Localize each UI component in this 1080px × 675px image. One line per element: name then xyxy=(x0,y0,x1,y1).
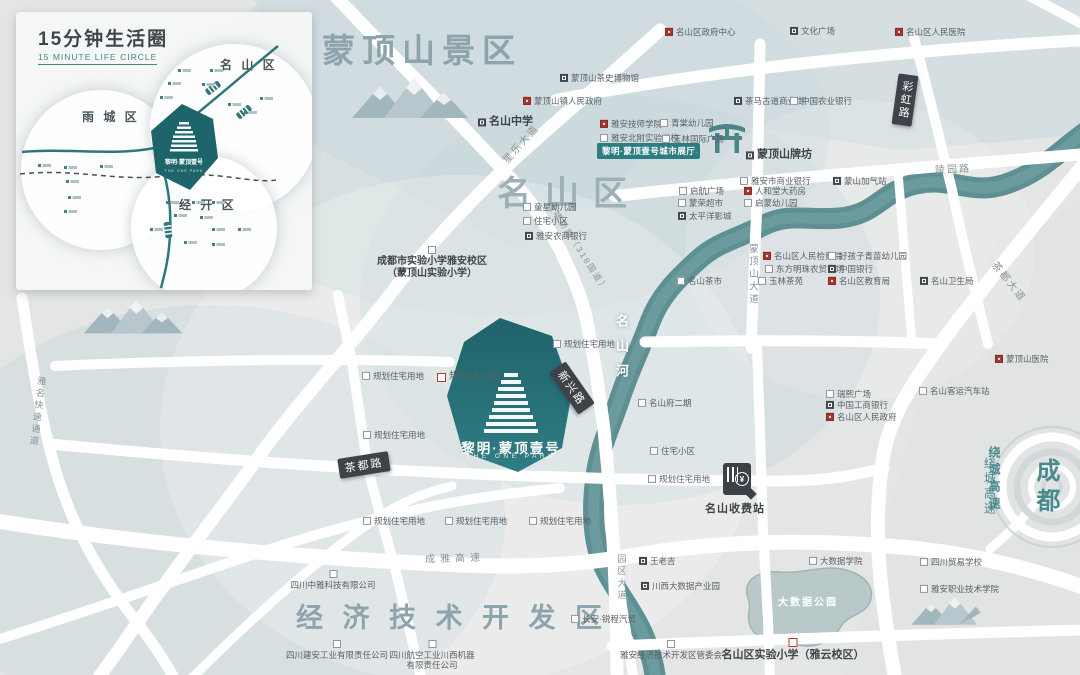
area-title-chengdu: 成都 xyxy=(1028,458,1063,518)
map-poi: 名山区实验小学（雅云校区） xyxy=(722,638,865,662)
map-poi: 名山区人民政府 xyxy=(826,412,897,422)
life-circle-inset: 雨 城 区名 山 区经 开 区 xyxy=(16,12,312,290)
map-poi: 蒙荣超市 xyxy=(678,198,723,208)
poi-marker-icon xyxy=(920,558,928,566)
arrow-icon: → xyxy=(689,145,700,157)
map-poi: 规划住宅用地 xyxy=(363,516,425,526)
poi-marker-icon xyxy=(828,252,836,260)
yuan-circle-icon: ¥ xyxy=(735,472,749,486)
poi-marker-icon xyxy=(529,517,537,525)
inset-micro-poi xyxy=(212,243,225,246)
river-label: 名山河 xyxy=(612,314,631,389)
poi-label: 名山区实验小学（雅云校区） xyxy=(722,649,865,662)
map-poi: 蒙顶山茶史博物馆 xyxy=(560,73,639,83)
poi-marker-icon xyxy=(523,217,531,225)
poi-marker-icon xyxy=(826,413,834,421)
poi-label: 规划住宅用地 xyxy=(564,339,615,349)
poi-label: 蒙荣超市 xyxy=(689,198,723,208)
inset-micro-poi xyxy=(238,228,251,231)
map-poi: 雅安技师学院 xyxy=(600,119,662,129)
poi-marker-icon xyxy=(789,638,798,647)
poi-marker-icon xyxy=(833,177,841,185)
map-poi: 规划住宅用地 xyxy=(529,516,591,526)
poi-marker-icon xyxy=(650,447,658,455)
poi-label: 蒙顶山茶史博物馆 xyxy=(571,73,639,83)
poi-marker-icon xyxy=(525,232,533,240)
map-poi: 启航广场 xyxy=(679,186,724,196)
poi-marker-icon xyxy=(600,134,608,142)
poi-marker-icon xyxy=(828,265,836,273)
inset-micro-poi xyxy=(100,165,113,168)
inset-micro-poi xyxy=(192,201,205,204)
poi-label: 启蒙幼儿园 xyxy=(755,198,798,208)
inset-micro-poi xyxy=(64,166,77,169)
map-poi: 名山卫生局 xyxy=(920,276,974,286)
map-poi: 中国银行 xyxy=(828,264,873,274)
poi-label: 雅安经济技术开发区管委会 xyxy=(620,650,722,660)
poi-label: 四川航空工业川西机器有限责任公司 xyxy=(389,650,474,670)
poi-marker-icon xyxy=(363,431,371,439)
poi-marker-icon xyxy=(560,74,568,82)
poi-marker-icon xyxy=(362,372,370,380)
poi-marker-icon xyxy=(329,570,337,578)
map-poi: 成都市实验小学雅安校区（蒙顶山实验小学） xyxy=(377,246,487,280)
map-poi: 四川贸易学校 xyxy=(920,557,982,567)
map-poi: 名山区人民医院 xyxy=(895,27,966,37)
map-poi: 太平洋影城 xyxy=(678,211,732,221)
poi-label: 蒙顶山镇人民政府 xyxy=(534,96,602,106)
poi-label: 雅安技师学院 xyxy=(611,119,662,129)
map-poi: 玉林茶苑 xyxy=(758,276,803,286)
poi-marker-icon xyxy=(740,177,748,185)
poi-label: 玉林茶苑 xyxy=(769,276,803,286)
poi-label: 蒙山加气站 xyxy=(844,176,887,186)
poi-marker-icon xyxy=(638,399,646,407)
map-poi: 大数据学院 xyxy=(809,556,863,566)
poi-marker-icon xyxy=(523,203,531,211)
poi-marker-icon xyxy=(826,401,834,409)
poi-label: 文化广场 xyxy=(801,26,835,36)
poi-label: 蒙顶山牌坊 xyxy=(757,148,812,161)
poi-marker-icon xyxy=(445,517,453,525)
poi-marker-icon xyxy=(677,277,685,285)
poi-marker-icon xyxy=(600,120,608,128)
poi-marker-icon xyxy=(648,475,656,483)
inset-micro-poi xyxy=(66,180,79,183)
poi-marker-icon xyxy=(995,355,1003,363)
map-poi: 中国农业银行 xyxy=(790,96,852,106)
map-poi: 四川建安工业有限责任公司 xyxy=(286,640,388,660)
poi-label: 规划住宅用地 xyxy=(659,474,710,484)
poi-marker-icon xyxy=(765,265,773,273)
inset-micro-poi xyxy=(260,97,273,100)
inset-artwork: 黎明·蒙顶壹号 THE ONE PARK xyxy=(16,12,312,290)
poi-label: 名山区人民政府 xyxy=(837,412,897,422)
poi-marker-icon xyxy=(678,212,686,220)
poi-marker-icon xyxy=(665,28,673,36)
poi-label: 青棠幼儿园 xyxy=(671,118,714,128)
poi-marker-icon xyxy=(428,640,436,648)
map-poi: 瑞熙广场 xyxy=(826,389,871,399)
poi-label: 太平洋影城 xyxy=(689,211,732,221)
inset-micro-poi xyxy=(150,228,163,231)
map-poi: 名山府二期 xyxy=(638,398,692,408)
poi-label: 雅安市商业银行 xyxy=(751,176,811,186)
map-poi: 规划住宅用地 xyxy=(362,371,424,381)
poi-marker-icon xyxy=(553,340,561,348)
rail-line xyxy=(20,172,276,180)
poi-marker-icon xyxy=(333,640,341,648)
poi-label: 大数据学院 xyxy=(820,556,863,566)
inset-micro-poi xyxy=(244,111,257,114)
poi-label: 规划住宅用地 xyxy=(374,430,425,440)
poi-marker-icon xyxy=(790,97,798,105)
inset-micro-poi xyxy=(166,201,179,204)
map-poi: 名山客运汽车站 xyxy=(919,386,990,396)
road-name-label: 蒙顶山大道 xyxy=(745,244,759,307)
map-poi: 名山中学 xyxy=(478,115,533,128)
inset-micro-poi xyxy=(160,96,173,99)
poi-label: 中国工商银行 xyxy=(837,400,888,410)
inset-micro-poi xyxy=(210,69,223,72)
poi-label: 长安·锐程汽贸 xyxy=(582,614,636,624)
map-poi: 蒙顶山牌坊 xyxy=(746,148,812,161)
poi-marker-icon xyxy=(744,199,752,207)
map-poi: 名山茶市 xyxy=(677,276,722,286)
area-title-devzone: 经 济 技 术 开 发 区 xyxy=(296,596,608,635)
poi-marker-icon xyxy=(571,615,579,623)
map-poi: 中国工商银行 xyxy=(826,400,888,410)
project-name-en: THE ONE PARK xyxy=(466,453,556,460)
poi-marker-icon xyxy=(744,187,752,195)
map-poi: 童星幼儿园 xyxy=(523,202,577,212)
pond-label: 大数据公园 xyxy=(778,594,838,609)
poi-marker-icon xyxy=(746,151,754,159)
map-poi: 规划住宅用地 xyxy=(363,430,425,440)
poi-label: 规划幼儿园 xyxy=(449,371,499,383)
poi-marker-icon xyxy=(363,517,371,525)
poi-label: 川西大数据产业园 xyxy=(652,581,720,591)
inset-micro-poi xyxy=(178,69,191,72)
map-poi: 文化广场 xyxy=(790,26,835,36)
inset-micro-poi xyxy=(38,164,51,167)
poi-marker-icon xyxy=(920,277,928,285)
location-map: 蒙顶山景区 名山区 经 济 技 术 开 发 区 成都 绕城高速 名山河 黎明·蒙… xyxy=(0,0,1080,675)
map-poi: 规划幼儿园 xyxy=(437,371,499,383)
poi-label: 名山茶市 xyxy=(688,276,722,286)
map-poi: 住宅小区 xyxy=(650,446,695,456)
poi-marker-icon xyxy=(895,28,903,36)
poi-marker-icon xyxy=(678,199,686,207)
ring-expressway-label: 绕城高速 xyxy=(986,446,1003,514)
poi-marker-icon xyxy=(809,557,817,565)
poi-label: 好孩子青苗幼儿园 xyxy=(839,251,907,261)
inset-micro-poi xyxy=(212,228,225,231)
poi-marker-icon xyxy=(734,97,742,105)
poi-label: 名山府二期 xyxy=(649,398,692,408)
poi-marker-icon xyxy=(662,135,670,143)
inset-micro-poi xyxy=(202,83,215,86)
poi-label: 规划住宅用地 xyxy=(374,516,425,526)
poi-label: 规划住宅用地 xyxy=(373,371,424,381)
inset-micro-poi xyxy=(68,196,81,199)
road-name-label: 成雅高速 xyxy=(425,548,485,565)
map-poi: 规划住宅用地 xyxy=(445,516,507,526)
poi-label: 王老吉 xyxy=(650,556,676,566)
poi-label: 童星幼儿园 xyxy=(534,202,577,212)
inset-micro-poi xyxy=(212,201,225,204)
poi-label: 雅安农商银行 xyxy=(536,231,587,241)
poi-marker-icon xyxy=(920,585,928,593)
map-poi: 规划住宅用地 xyxy=(553,339,615,349)
poi-marker-icon xyxy=(437,373,446,382)
inset-micro-poi xyxy=(184,241,197,244)
map-poi: 蒙顶山镇人民政府 xyxy=(523,96,602,106)
poi-label: 四川建安工业有限责任公司 xyxy=(286,650,388,660)
map-poi: 王老吉 xyxy=(639,556,676,566)
poi-label: 规划住宅用地 xyxy=(540,516,591,526)
map-poi: 长安·锐程汽贸 xyxy=(571,614,636,624)
poi-marker-icon xyxy=(679,187,687,195)
inset-micro-poi xyxy=(64,210,77,213)
poi-label: 四川贸易学校 xyxy=(931,557,982,567)
poi-label: 四川中雅科技有限公司 xyxy=(290,580,375,590)
poi-label: 中国农业银行 xyxy=(801,96,852,106)
map-poi: 规划住宅用地 xyxy=(648,474,710,484)
map-poi: 名山区政府中心 xyxy=(665,27,736,37)
map-poi: 四川中雅科技有限公司 xyxy=(290,570,375,590)
poi-marker-icon xyxy=(828,277,836,285)
poi-marker-icon xyxy=(660,119,668,127)
poi-label: 住宅小区 xyxy=(661,446,695,456)
poi-marker-icon xyxy=(763,252,771,260)
poi-label: 中国银行 xyxy=(839,264,873,274)
toll-station-icon: ¥ xyxy=(723,463,751,495)
poi-label: 名山区教育局 xyxy=(839,276,890,286)
inset-micro-poi xyxy=(174,214,187,217)
poi-label: 名山卫生局 xyxy=(931,276,974,286)
map-poi: 四川航空工业川西机器有限责任公司 xyxy=(389,640,474,670)
poi-marker-icon xyxy=(758,277,766,285)
map-poi: 住宅小区 xyxy=(523,216,568,226)
inset-micro-poi xyxy=(200,216,213,219)
poi-label: 蒙顶山医院 xyxy=(1006,354,1049,364)
toll-station-label: 名山收费站 xyxy=(705,500,765,516)
poi-label: 名山区人民医院 xyxy=(906,27,966,37)
poi-marker-icon xyxy=(826,390,834,398)
inset-project-name: 黎明·蒙顶壹号 xyxy=(165,158,203,166)
map-poi: 青棠幼儿园 xyxy=(660,118,714,128)
poi-marker-icon xyxy=(639,557,647,565)
poi-marker-icon xyxy=(641,582,649,590)
map-poi: 雅安职业技术学院 xyxy=(920,584,999,594)
map-poi: 蒙山加气站 xyxy=(833,176,887,186)
poi-label: 规划住宅用地 xyxy=(456,516,507,526)
poi-marker-icon xyxy=(478,118,486,126)
poi-marker-icon xyxy=(428,246,436,254)
inset-micro-poi xyxy=(228,103,241,106)
inset-project-blob: 黎明·蒙顶壹号 THE ONE PARK xyxy=(151,104,218,190)
poi-label: 名山区政府中心 xyxy=(676,27,736,37)
map-poi: 雅安经济技术开发区管委会 xyxy=(620,640,722,660)
map-poi: 启蒙幼儿园 xyxy=(744,198,798,208)
map-poi: 好孩子青苗幼儿园 xyxy=(828,251,907,261)
map-poi: 名山区教育局 xyxy=(828,276,890,286)
area-title-scenic: 蒙顶山景区 xyxy=(322,24,522,72)
poi-label: 雅安职业技术学院 xyxy=(931,584,999,594)
showroom-tag: 黎明·蒙顶壹号城市展厅 xyxy=(597,143,700,159)
poi-label: 成都市实验小学雅安校区（蒙顶山实验小学） xyxy=(377,256,487,280)
inset-micro-poi xyxy=(168,82,181,85)
poi-label: 瑞熙广场 xyxy=(837,389,871,399)
road-name-label: 陵园路 xyxy=(935,160,972,177)
poi-label: 名山客运汽车站 xyxy=(930,386,990,396)
poi-label: 名山中学 xyxy=(489,115,533,128)
road-name-label: 园区大道 xyxy=(616,554,629,602)
poi-marker-icon xyxy=(790,27,798,35)
poi-label: 人和堂大药房 xyxy=(755,186,806,196)
poi-marker-icon xyxy=(919,387,927,395)
poi-label: 启航广场 xyxy=(690,186,724,196)
map-poi: 雅安农商银行 xyxy=(525,231,587,241)
map-poi: 川西大数据产业园 xyxy=(641,581,720,591)
map-poi: 人和堂大药房 xyxy=(744,186,806,196)
map-poi: 蒙顶山医院 xyxy=(995,354,1049,364)
poi-label: 住宅小区 xyxy=(534,216,568,226)
map-poi: 雅安市商业银行 xyxy=(740,176,811,186)
inset-project-name-en: THE ONE PARK xyxy=(165,169,204,173)
poi-marker-icon xyxy=(523,97,531,105)
poi-marker-icon xyxy=(667,640,675,648)
